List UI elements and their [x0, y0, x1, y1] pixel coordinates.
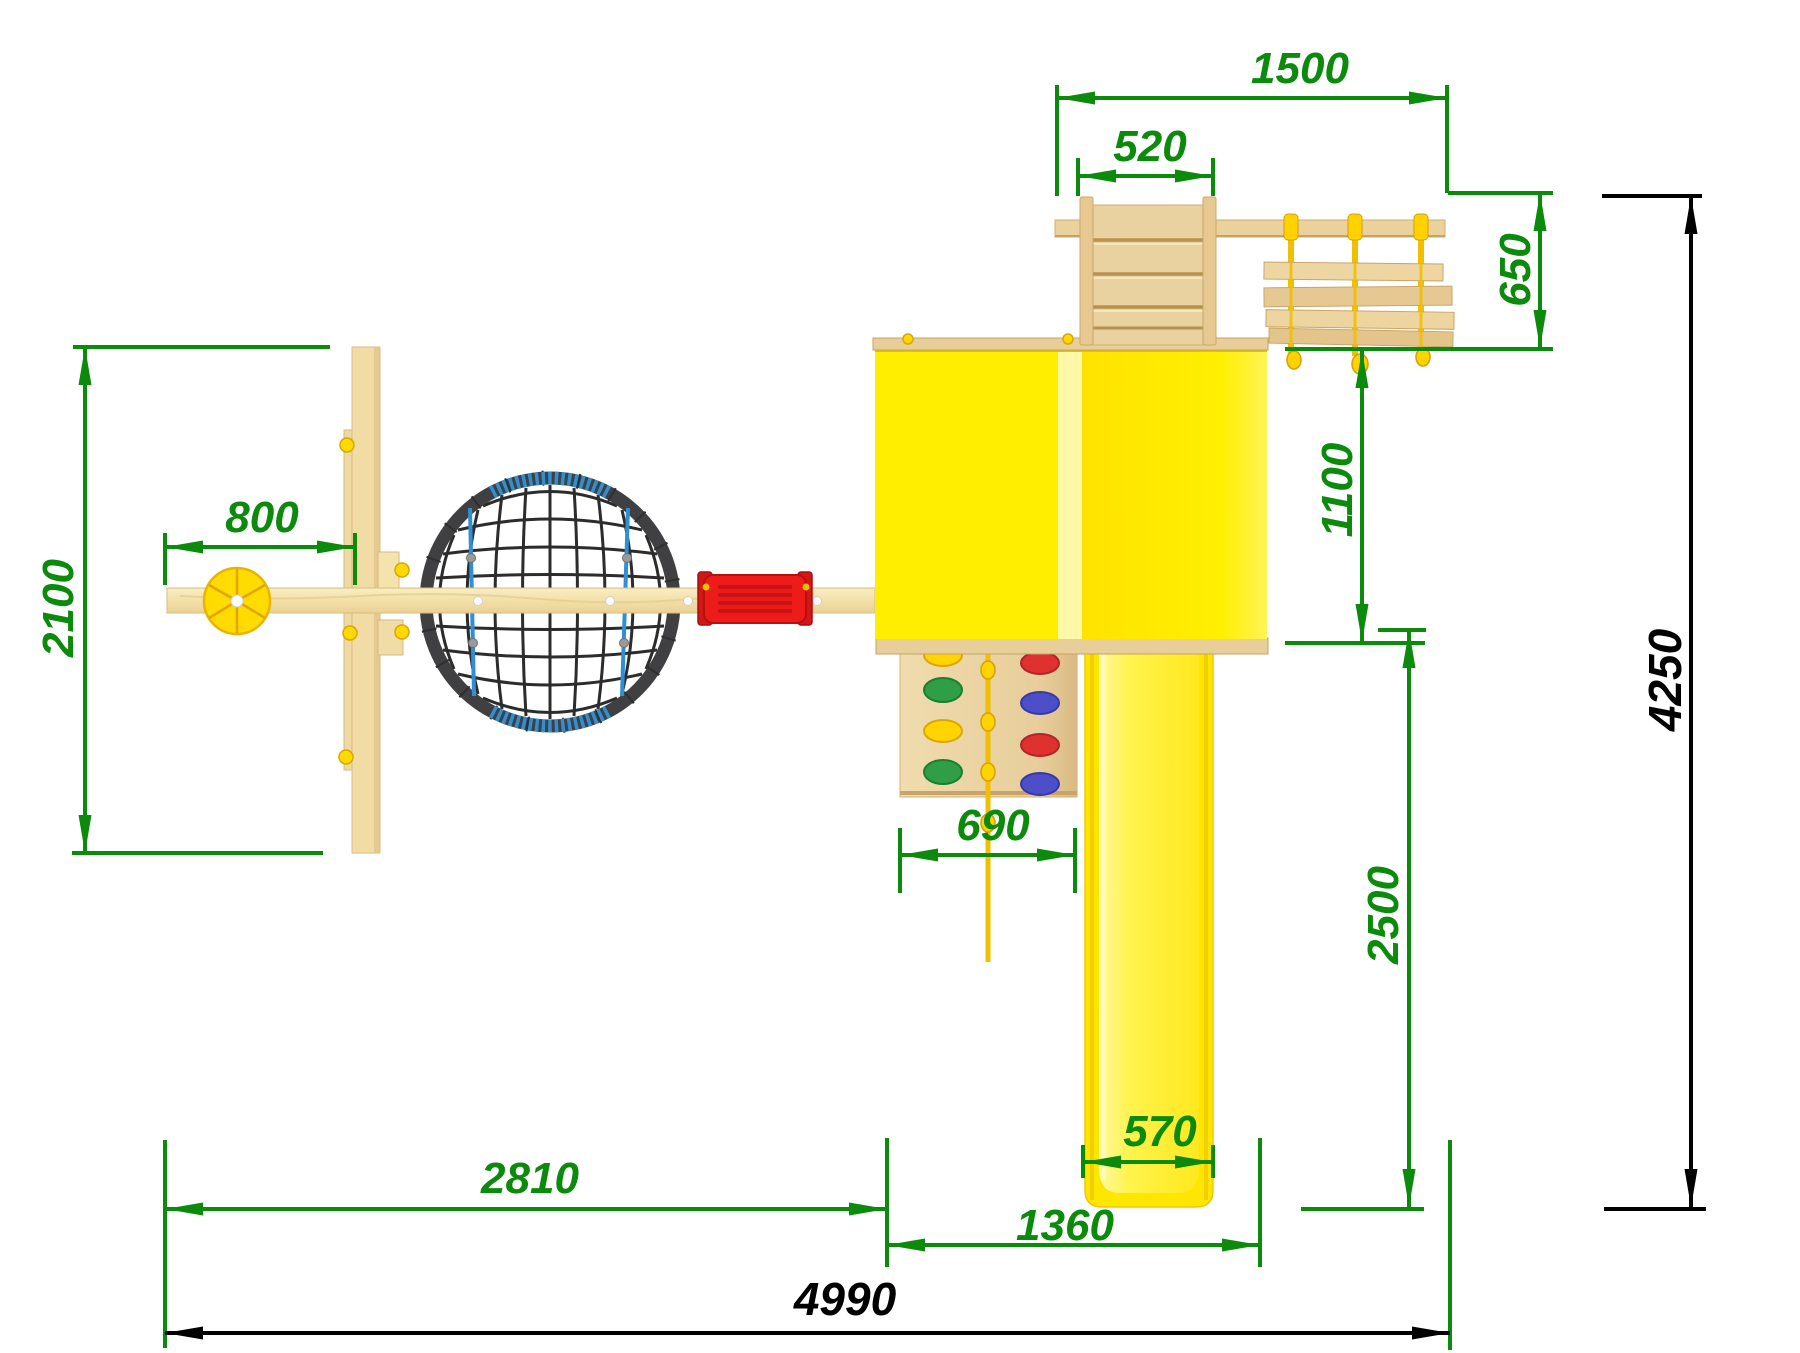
dim-overall-width: 4990 [165, 1273, 1450, 1340]
dim-deck-depth: 1100 [1285, 350, 1425, 643]
dimensions-green: 1500 520 650 1100 [34, 44, 1553, 1350]
steering-wheel-disc [204, 568, 270, 634]
disc-hub [231, 595, 243, 607]
deck-edge-bottom [876, 638, 1268, 654]
dim-label-1500: 1500 [1251, 44, 1349, 93]
board-swing-seat [698, 572, 812, 625]
dim-label-520: 520 [1113, 122, 1187, 171]
bracket-bolt-right [803, 584, 810, 591]
dim-label-650: 650 [1491, 233, 1540, 307]
dim-label-1360: 1360 [1016, 1201, 1114, 1250]
deck-bolt-cap [903, 334, 913, 344]
dim-swing-section-width: 2810 [165, 1140, 887, 1348]
dim-label-2100: 2100 [34, 559, 83, 658]
roof-right-slope [1082, 349, 1267, 639]
dim-ladder-depth: 650 [1448, 193, 1553, 348]
slide-bed [1099, 600, 1199, 1193]
dim-slide-run: 2500 [1301, 630, 1426, 1209]
dim-label-800: 800 [225, 493, 299, 542]
dim-overall-depth: 4250 [1602, 196, 1706, 1209]
roof-ridge-stripe [1058, 349, 1082, 639]
ramp-rail-right [1203, 197, 1216, 345]
playground-top-view-drawing: 1500 520 650 1100 [0, 0, 1800, 1353]
dim-label-2500: 2500 [1359, 866, 1408, 965]
dim-ramp-width: 520 [1078, 122, 1213, 196]
bracket-bolt-left [703, 584, 710, 591]
climbing-ramp [1080, 197, 1216, 345]
dim-label-4990: 4990 [793, 1273, 897, 1325]
drawing-canvas: 1500 520 650 1100 [0, 0, 1800, 1353]
deck-bolt-cap [1063, 334, 1073, 344]
dim-label-1100: 1100 [1313, 442, 1362, 537]
dim-wheel-offset: 800 [165, 493, 355, 585]
dim-label-2810: 2810 [480, 1154, 579, 1203]
tower-roof [875, 349, 1267, 639]
ladder-rope-knots [1287, 348, 1430, 374]
dim-label-570: 570 [1123, 1107, 1197, 1156]
dim-label-690: 690 [956, 801, 1030, 850]
dim-label-4250: 4250 [1639, 628, 1691, 732]
ramp-rail-left [1080, 197, 1093, 345]
